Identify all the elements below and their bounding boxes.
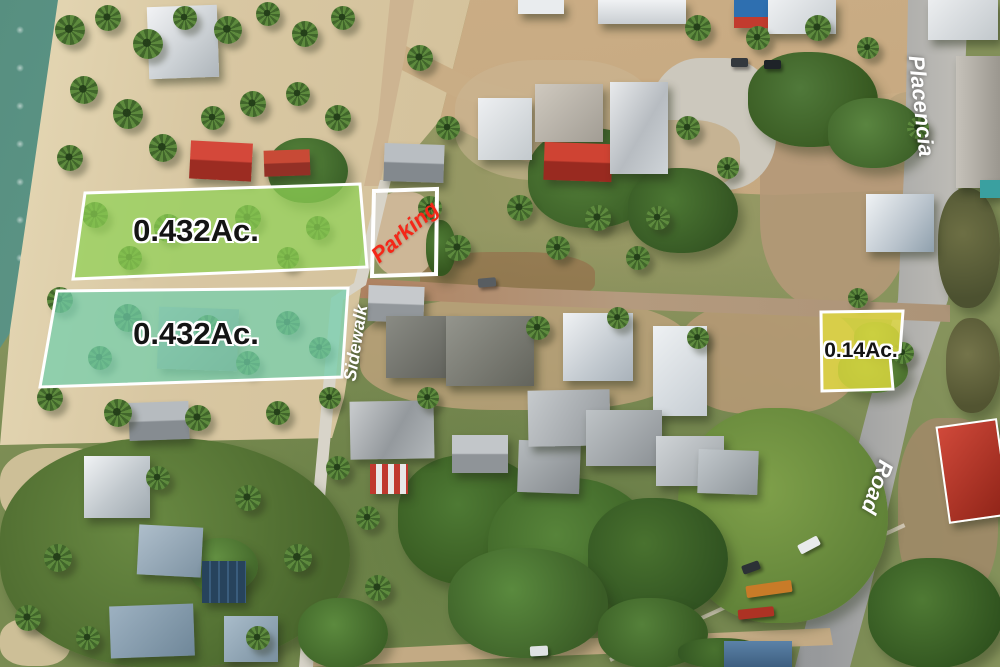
- lot-area-label-north: 0.432Ac.: [133, 213, 259, 249]
- lot-area-label-south: 0.432Ac.: [133, 316, 259, 352]
- lot-area-label-roadside: 0.14Ac.: [824, 339, 898, 363]
- aerial-photo: 0.432Ac. 0.432Ac. 0.14Ac. Parking Sidewa…: [0, 0, 1000, 667]
